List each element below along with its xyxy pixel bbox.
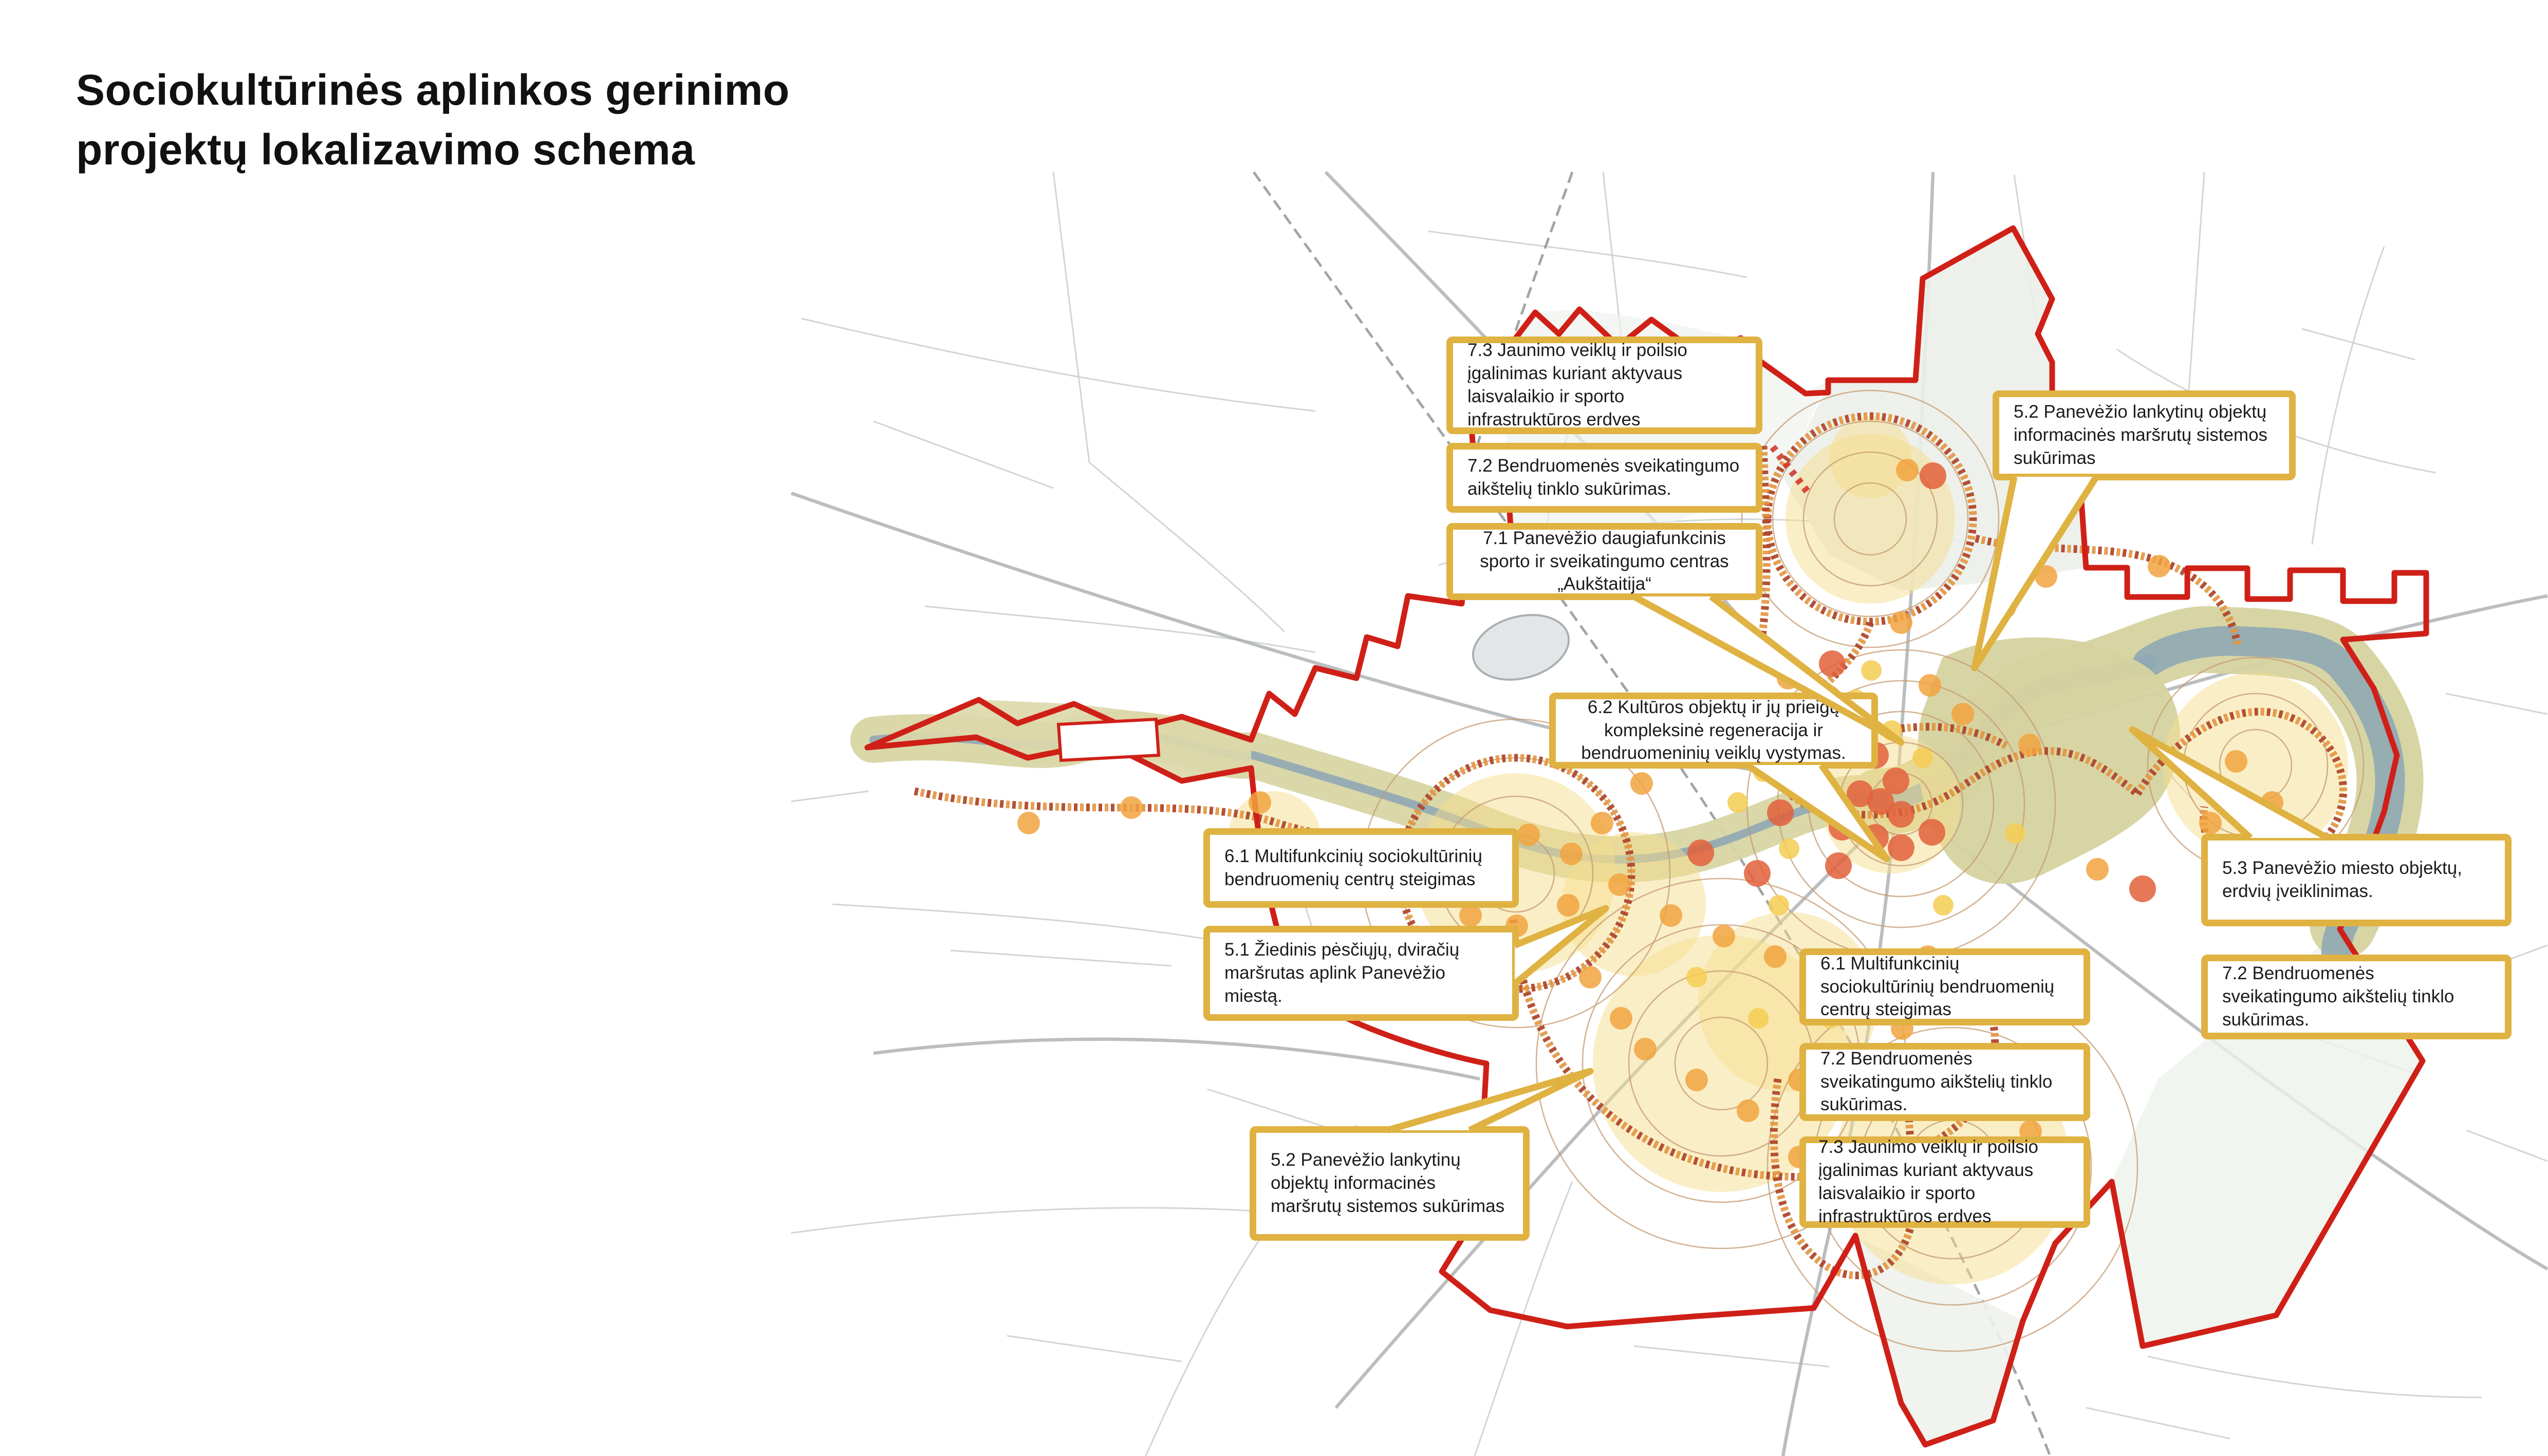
dot-red <box>1920 462 1946 489</box>
dot-orange <box>1660 904 1682 927</box>
dot-orange <box>1713 925 1735 947</box>
callout-7-2-south: 7.2 Bendruomenės sveikatingumo aikštelių… <box>1799 1043 2090 1121</box>
callout-7-1: 7.1 Panevėžio daugiafunkcinis sporto ir … <box>1446 523 1762 600</box>
dot-red <box>1744 860 1771 887</box>
dot-red <box>2129 875 2156 902</box>
dot-red <box>1767 799 1794 826</box>
dot-orange <box>1610 1007 1632 1030</box>
page-title-line2: projektų lokalizavimo schema <box>76 120 790 180</box>
dot-orange <box>1634 1038 1657 1060</box>
callout-7-3-south: 7.3 Jaunimo veiklų ir poilsio įgalinimas… <box>1799 1136 2090 1228</box>
callout-5-2-northeast: 5.2 Panevėžio lankytinų objektų informac… <box>1993 390 2296 480</box>
dot-red <box>1919 819 1945 846</box>
dot-orange <box>2018 734 2041 756</box>
callout-7-3-north: 7.3 Jaunimo veiklų ir poilsio įgalinimas… <box>1446 337 1762 434</box>
boundary-inner-parcel <box>1058 719 1159 760</box>
callout-label: 5.1 Žiedinis pėsčiųjų, dviračių maršruta… <box>1224 939 1498 1007</box>
stadium-area <box>1466 605 1576 689</box>
callout-6-2: 6.2 Kultūros objektų ir jų prieigų kompl… <box>1549 693 1878 769</box>
page-title-line1: Sociokultūrinės aplinkos gerinimo <box>76 61 790 120</box>
dot-red <box>1888 801 1914 828</box>
dot-yellow <box>2005 823 2025 844</box>
callout-label: 7.3 Jaunimo veiklų ir poilsio įgalinimas… <box>1467 339 1741 431</box>
dot-orange <box>2086 858 2109 881</box>
page-title: Sociokultūrinės aplinkos gerinimo projek… <box>76 61 790 180</box>
dot-orange <box>1579 966 1602 988</box>
callout-label: 7.3 Jaunimo veiklų ir poilsio įgalinimas… <box>1818 1136 2071 1228</box>
dot-red <box>1888 834 1914 861</box>
callout-label: 6.1 Multifunkcinių sociokultūrinių bendr… <box>1820 953 2069 1021</box>
dot-red <box>1808 786 1835 812</box>
callout-label: 7.1 Panevėžio daugiafunkcinis sporto ir … <box>1467 527 1741 596</box>
callout-label: 6.2 Kultūros objektų ir jų prieigų kompl… <box>1570 696 1857 765</box>
dot-orange <box>1890 611 1912 634</box>
dot-orange <box>1764 945 1787 968</box>
callout-6-1-west: 6.1 Multifunkcinių sociokultūrinių bendr… <box>1203 828 1519 908</box>
callout-5-2-southwest: 5.2 Panevėžio lankytinų objektų informac… <box>1250 1126 1530 1241</box>
callout-5-1: 5.1 Žiedinis pėsčiųjų, dviračių maršruta… <box>1203 926 1519 1021</box>
dot-orange <box>2261 791 2283 814</box>
callout-label: 7.2 Bendruomenės sveikatingumo aikštelių… <box>1820 1048 2069 1116</box>
dot-yellow <box>1748 1008 1769 1029</box>
dot-orange <box>1919 674 1941 697</box>
dot-orange <box>1630 772 1653 795</box>
callout-label: 5.2 Panevėžio lankytinų objektų informac… <box>2014 401 2275 470</box>
dot-orange <box>1017 812 1040 834</box>
dot-red <box>1788 769 1814 795</box>
dot-yellow <box>1769 895 1789 916</box>
callout-7-2-east: 7.2 Bendruomenės sveikatingumo aikštelių… <box>2201 955 2512 1039</box>
dot-orange <box>1249 791 1271 814</box>
dot-red <box>1847 780 1873 807</box>
dot-yellow <box>1882 720 1902 741</box>
dot-orange <box>1560 843 1583 865</box>
dot-orange <box>1591 812 1613 834</box>
dot-yellow <box>1686 967 1707 987</box>
callout-label: 5.2 Panevėžio lankytinų objektų informac… <box>1271 1149 1509 1218</box>
callout-5-3: 5.3 Panevėžio miesto objektų, erdvių įve… <box>2201 834 2512 926</box>
dot-orange <box>1517 824 1540 846</box>
dot-orange <box>1608 873 1631 896</box>
dot-orange <box>1685 1069 1708 1091</box>
dot-orange <box>1777 667 1799 689</box>
callout-6-1-south: 6.1 Multifunkcinių sociokultūrinių bendr… <box>1799 948 2090 1025</box>
dot-orange <box>1896 459 1919 481</box>
dot-yellow <box>1912 748 1933 768</box>
callout-label: 7.2 Bendruomenės sveikatingumo aikštelių… <box>1467 455 1741 501</box>
dot-orange <box>1737 1099 1759 1122</box>
dot-orange <box>1994 596 2016 619</box>
dot-orange <box>1557 894 1579 917</box>
dot-orange <box>2148 555 2170 577</box>
dot-orange <box>1951 703 1974 725</box>
dot-orange <box>2199 812 2222 834</box>
dot-yellow <box>1779 838 1799 859</box>
dot-yellow <box>1861 660 1882 681</box>
dot-yellow <box>1933 895 1954 916</box>
callout-label: 6.1 Multifunkcinių sociokultūrinių bendr… <box>1224 845 1498 891</box>
dot-red <box>1687 839 1714 866</box>
dot-yellow <box>1727 792 1748 813</box>
callout-label: 7.2 Bendruomenės sveikatingumo aikštelių… <box>2222 962 2490 1031</box>
dot-red <box>1819 650 1846 677</box>
dot-red <box>1825 852 1852 879</box>
dot-orange <box>2225 750 2247 773</box>
dot-orange <box>1120 796 1143 819</box>
callout-label: 5.3 Panevėžio miesto objektų, erdvių įve… <box>2222 857 2490 903</box>
dot-red <box>1829 814 1855 841</box>
callout-7-2-north: 7.2 Bendruomenės sveikatingumo aikštelių… <box>1446 443 1762 513</box>
dot-orange <box>2035 565 2057 588</box>
dot-red <box>1862 824 1889 851</box>
